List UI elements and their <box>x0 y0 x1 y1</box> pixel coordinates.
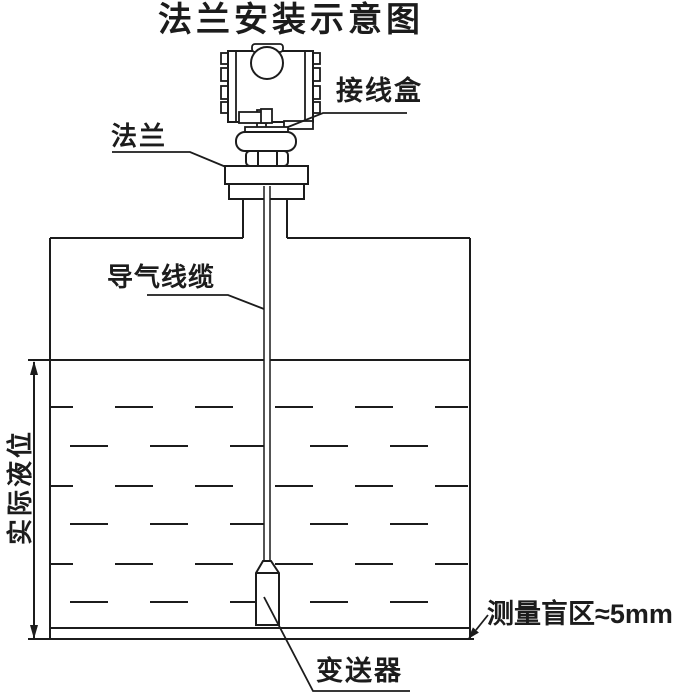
sensor-weight <box>256 561 279 625</box>
dimension-arrow-down <box>30 625 38 639</box>
leader-flange <box>112 152 226 167</box>
flange-plate <box>225 166 308 184</box>
tank-outline <box>28 238 474 639</box>
diagram-canvas: 法兰安装示意图 接线盒 法兰 导气线缆 实际液位 测量盲区≈5mm 变送器 <box>0 0 700 700</box>
label-air-cable: 导气线缆 <box>107 263 215 292</box>
dimension-arrow-up <box>30 361 38 375</box>
label-transmitter: 变送器 <box>316 657 403 687</box>
label-actual-level: 实际液位 <box>6 417 36 557</box>
hex-nut <box>246 151 288 166</box>
label-flange: 法兰 <box>111 122 167 151</box>
label-blind-zone: 测量盲区≈5mm <box>487 600 673 630</box>
cap-circle <box>251 47 283 79</box>
swivel-coupling <box>236 132 296 151</box>
diagram-title: 法兰安装示意图 <box>158 2 424 39</box>
label-junction-box: 接线盒 <box>336 77 423 107</box>
leader-air-cable <box>147 295 264 309</box>
air-guide-cable <box>264 186 270 562</box>
